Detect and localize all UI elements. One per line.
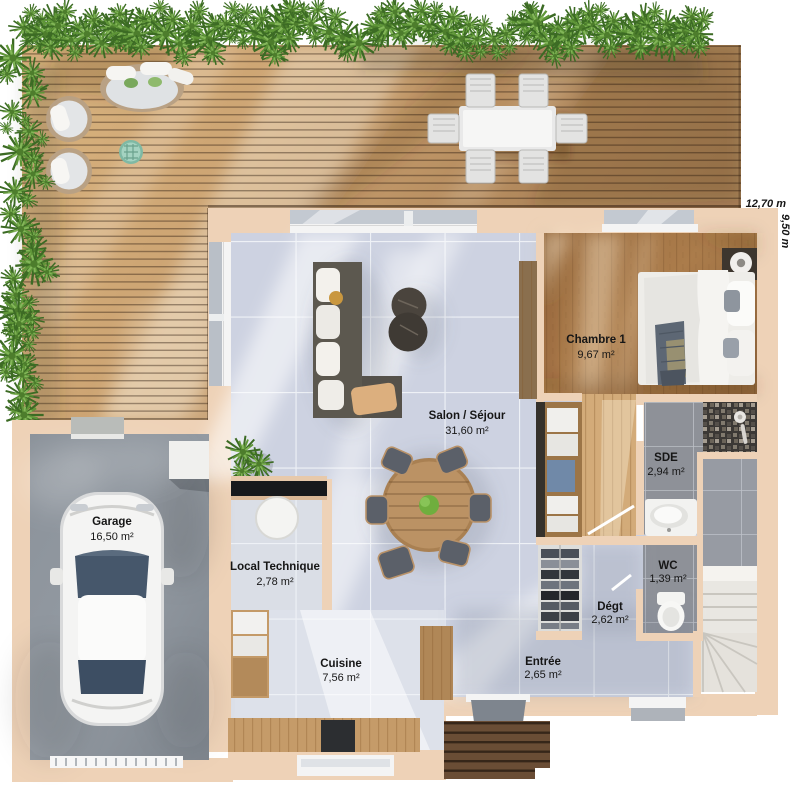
svg-text:16,50 m²: 16,50 m² xyxy=(90,531,134,543)
svg-text:1,39 m²: 1,39 m² xyxy=(649,573,687,585)
svg-text:WC: WC xyxy=(658,560,677,572)
svg-text:Local Technique: Local Technique xyxy=(230,561,320,573)
svg-text:7,56 m²: 7,56 m² xyxy=(322,672,360,684)
svg-text:Cuisine: Cuisine xyxy=(320,658,362,670)
svg-text:2,65 m²: 2,65 m² xyxy=(524,669,562,681)
svg-text:Entrée: Entrée xyxy=(525,656,561,668)
svg-text:31,60 m²: 31,60 m² xyxy=(445,425,489,437)
svg-text:SDE: SDE xyxy=(654,452,678,464)
svg-text:Salon / Séjour: Salon / Séjour xyxy=(429,410,506,422)
svg-text:2,62 m²: 2,62 m² xyxy=(591,614,629,626)
svg-text:Dégt: Dégt xyxy=(597,601,623,613)
svg-text:12,70 m: 12,70 m xyxy=(746,198,787,210)
svg-text:9,67 m²: 9,67 m² xyxy=(577,349,615,361)
svg-text:9,50 m: 9,50 m xyxy=(779,214,791,248)
svg-text:Chambre 1: Chambre 1 xyxy=(566,334,626,346)
svg-text:2,94 m²: 2,94 m² xyxy=(647,466,685,478)
svg-text:Garage: Garage xyxy=(92,516,132,528)
svg-text:2,78 m²: 2,78 m² xyxy=(256,576,294,588)
